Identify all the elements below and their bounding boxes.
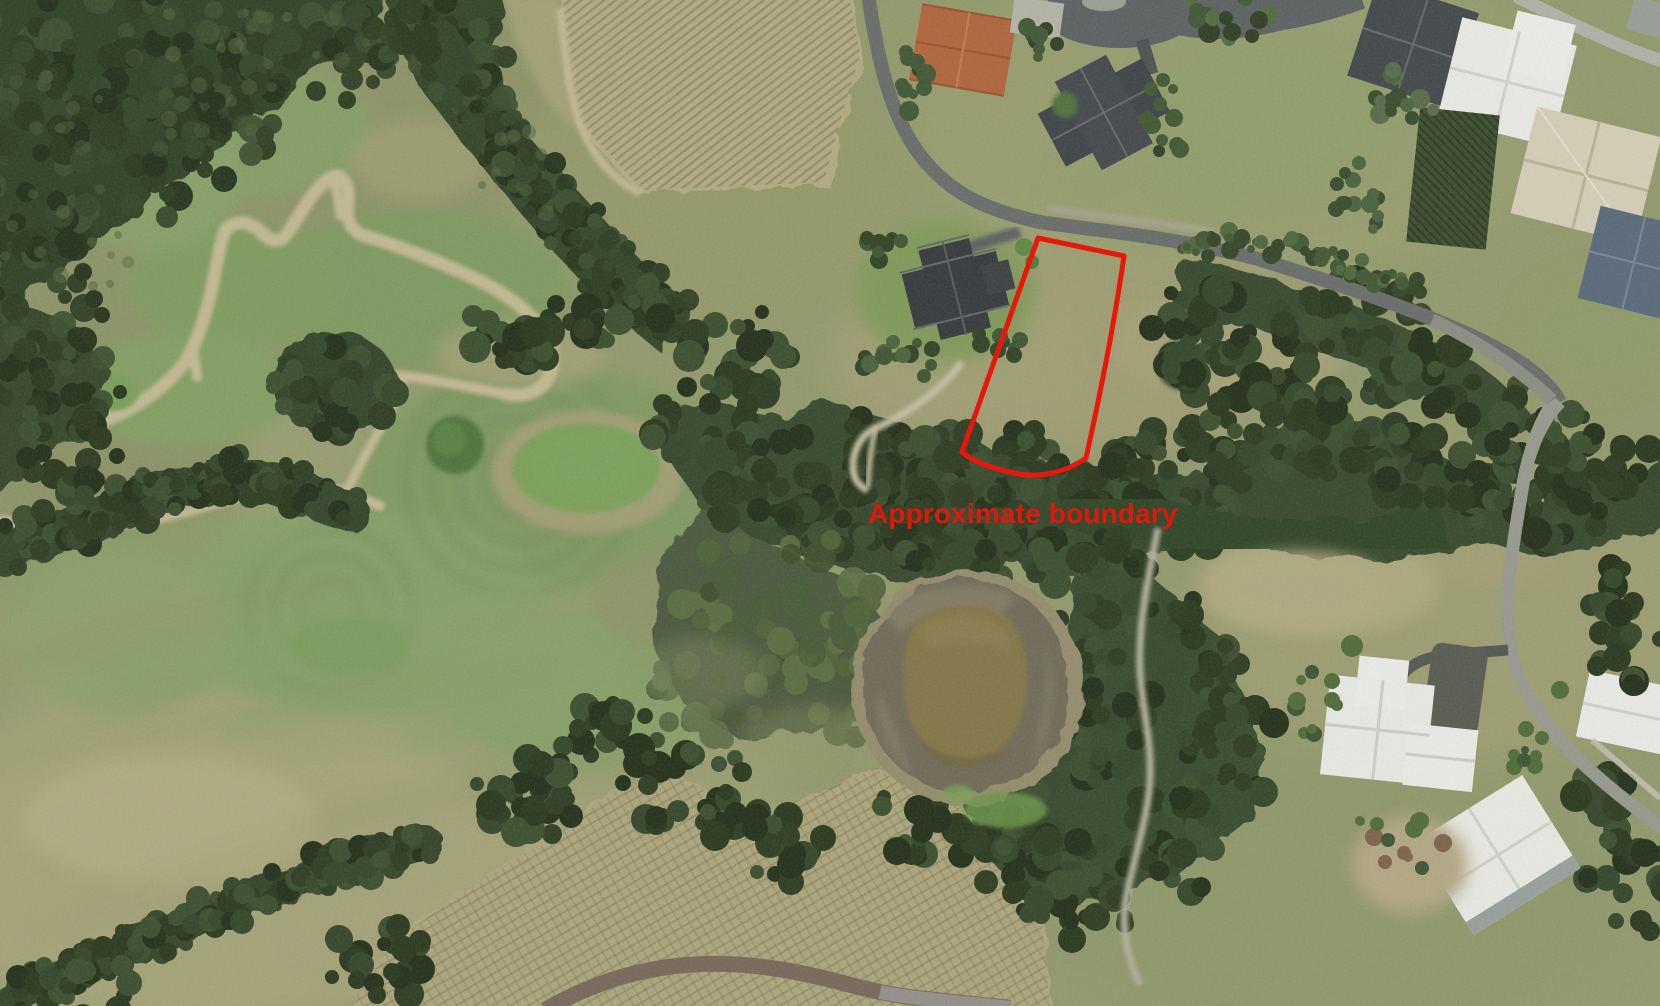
svg-text:Approximate boundary: Approximate boundary xyxy=(868,498,1178,529)
